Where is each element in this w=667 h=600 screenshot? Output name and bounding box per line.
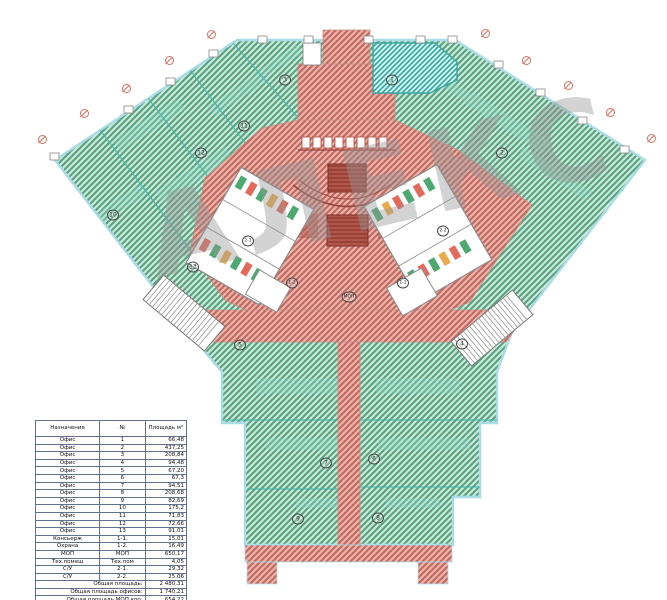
table-cell: 1-2. <box>100 543 146 551</box>
axis-mark-icon <box>481 29 490 38</box>
axis-mark-icon <box>38 135 47 144</box>
table-row: Офис1391,01 <box>36 528 187 536</box>
room-label: 1 <box>386 75 398 86</box>
bottom-band <box>245 545 452 562</box>
table-cell: 1 <box>100 437 146 445</box>
table-cell: Офис <box>36 482 100 490</box>
table-cell: 9 <box>100 497 146 505</box>
axis-mark-icon <box>122 84 131 93</box>
table-cell: Тех.помещ <box>36 558 100 566</box>
table-row: Офис667,3 <box>36 474 187 482</box>
table-cell: 8 <box>100 490 146 498</box>
table-header-cell: Назначение <box>36 421 100 437</box>
table-cell: Офис <box>36 520 100 528</box>
table-cell: 437,25 <box>145 444 186 452</box>
room-label: 6 <box>368 454 380 465</box>
table-cell: 15,01 <box>145 535 186 543</box>
table-cell: 2 <box>100 444 146 452</box>
table-row: Офис1171,83 <box>36 512 187 520</box>
table-cell: 29,32 <box>145 566 186 574</box>
axis-mark-icon <box>207 30 216 39</box>
table-cell: 5 <box>100 467 146 475</box>
floor-plan-page: АЛЕКС 123111210135476982-12-21-21-1МОП Н… <box>0 0 667 600</box>
table-row: Тех.помещТех.пом4,05 <box>36 558 187 566</box>
table-header-cell: Площадь м² <box>145 421 186 437</box>
table-row: МОПМОП650,17 <box>36 550 187 558</box>
table-row: С/У2-2.25,06 <box>36 573 187 581</box>
table-cell: 10 <box>100 505 146 513</box>
room-label: 13 <box>187 262 199 273</box>
table-cell: 12 <box>100 520 146 528</box>
room-label: 9 <box>292 514 304 525</box>
area-table-header: Назначение№Площадь м² <box>36 421 187 437</box>
table-row: Офис1272,66 <box>36 520 187 528</box>
bottom-pier-right <box>418 562 448 584</box>
table-row: Офис10175,2 <box>36 505 187 513</box>
table-cell: 67,20 <box>145 467 186 475</box>
table-total-label: Общая площадь офисов: <box>36 588 146 596</box>
table-header-cell: № <box>100 421 146 437</box>
axis-mark-icon <box>522 56 531 65</box>
room-label: 11 <box>238 121 250 132</box>
area-table-body: Офис166,48Офис2437,25Офис3208,84Офис494,… <box>36 437 187 600</box>
table-cell: 91,01 <box>145 528 186 536</box>
table-cell: МОП <box>100 550 146 558</box>
area-table: Назначение№Площадь м² Офис166,48Офис2437… <box>35 420 187 600</box>
room-label: МОП <box>342 292 357 303</box>
table-cell: 94,51 <box>145 482 186 490</box>
entrance-slot-room <box>303 43 321 65</box>
room-label: 3 <box>279 75 291 86</box>
table-cell: Офис <box>36 497 100 505</box>
table-cell: 4,05 <box>145 558 186 566</box>
table-cell: 175,2 <box>145 505 186 513</box>
axis-mark-icon <box>80 109 89 118</box>
room-label: 8 <box>372 513 384 524</box>
table-cell: 2-2. <box>100 573 146 581</box>
table-row: Офис794,51 <box>36 482 187 490</box>
table-cell: 208,84 <box>145 452 186 460</box>
table-cell: 208,68 <box>145 490 186 498</box>
table-cell: Офис <box>36 505 100 513</box>
room-label: 2-1 <box>242 236 254 247</box>
table-cell: 4 <box>100 459 146 467</box>
tech-room-office1 <box>373 43 457 93</box>
room-label: 4 <box>456 339 468 350</box>
bottom-pier-left <box>247 562 277 584</box>
table-cell: МОП <box>36 550 100 558</box>
table-total-value: 654,22 <box>145 596 186 600</box>
table-cell: Тех.пом <box>100 558 146 566</box>
table-cell: Офис <box>36 474 100 482</box>
table-cell: 66,48 <box>145 437 186 445</box>
table-cell: 3 <box>100 452 146 460</box>
table-cell: 25,06 <box>145 573 186 581</box>
table-row: Офис567,20 <box>36 467 187 475</box>
table-cell: 650,17 <box>145 550 186 558</box>
table-cell: 94,48 <box>145 459 186 467</box>
table-cell: 72,66 <box>145 520 186 528</box>
table-row: Офис166,48 <box>36 437 187 445</box>
table-cell: Офис <box>36 467 100 475</box>
table-row: Консьерж1-1.15,01 <box>36 535 187 543</box>
table-cell: 2-1. <box>100 566 146 574</box>
room-label: 1-2 <box>286 278 298 289</box>
table-total-row: Общая площадь МОП кор:654,22 <box>36 596 187 600</box>
table-cell: Офис <box>36 490 100 498</box>
table-total-value: 2 480,31 <box>145 581 186 589</box>
table-cell: С/У <box>36 573 100 581</box>
table-cell: 67,3 <box>145 474 186 482</box>
table-total-row: Общая площадь:2 480,31 <box>36 581 187 589</box>
table-row: Офис8208,68 <box>36 490 187 498</box>
table-cell: 13 <box>100 528 146 536</box>
table-row: Охрана1-2.16,49 <box>36 543 187 551</box>
stair-shaft-upper <box>328 164 366 192</box>
room-label: 7 <box>320 458 332 469</box>
axis-mark-icon <box>564 81 573 90</box>
axis-mark-icon <box>165 56 174 65</box>
table-cell: Офис <box>36 528 100 536</box>
stair-shaft-lower <box>327 215 368 246</box>
axis-mark-icon <box>647 134 656 143</box>
central-corridor <box>338 342 360 545</box>
table-total-label: Общая площадь МОП кор: <box>36 596 146 600</box>
table-total-value: 1 740,21 <box>145 588 186 596</box>
table-cell: 6 <box>100 474 146 482</box>
table-cell: Офис <box>36 437 100 445</box>
table-row: Офис982,69 <box>36 497 187 505</box>
room-label: 10 <box>107 210 119 221</box>
table-cell: Офис <box>36 452 100 460</box>
table-total-row: Общая площадь офисов:1 740,21 <box>36 588 187 596</box>
table-cell: 1-1. <box>100 535 146 543</box>
room-label: 5 <box>234 340 246 351</box>
table-cell: 82,69 <box>145 497 186 505</box>
table-row: С/У2-1.29,32 <box>36 566 187 574</box>
table-cell: Офис <box>36 512 100 520</box>
table-cell: Охрана <box>36 543 100 551</box>
table-cell: 16,49 <box>145 543 186 551</box>
axis-mark-icon <box>606 108 615 117</box>
room-label: 2 <box>496 148 508 159</box>
table-cell: Консьерж <box>36 535 100 543</box>
table-cell: Офис <box>36 459 100 467</box>
table-cell: С/У <box>36 566 100 574</box>
table-total-label: Общая площадь: <box>36 581 146 589</box>
table-cell: Офис <box>36 444 100 452</box>
table-cell: 71,83 <box>145 512 186 520</box>
table-header-row: Назначение№Площадь м² <box>36 421 187 437</box>
table-row: Офис2437,25 <box>36 444 187 452</box>
room-label: 1-1 <box>397 278 409 289</box>
room-label: 12 <box>195 148 207 159</box>
table-row: Офис3208,84 <box>36 452 187 460</box>
table-row: Офис494,48 <box>36 459 187 467</box>
table-cell: 7 <box>100 482 146 490</box>
table-cell: 11 <box>100 512 146 520</box>
room-label: 2-2 <box>437 226 449 237</box>
